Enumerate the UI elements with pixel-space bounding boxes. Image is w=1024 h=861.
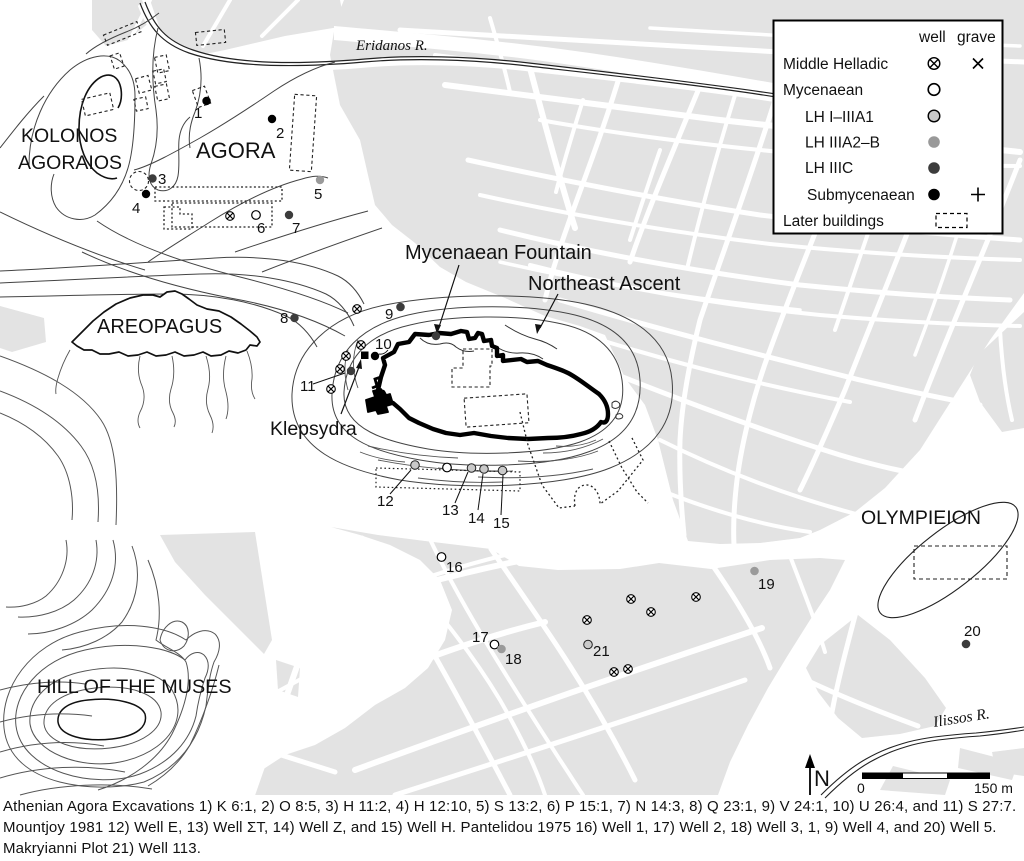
svg-text:15: 15: [493, 515, 510, 532]
svg-text:Athenian Agora Excavations 1): Athenian Agora Excavations 1) K 6:1, 2) …: [3, 798, 1016, 815]
svg-text:Klepsydra: Klepsydra: [270, 418, 357, 440]
svg-text:AGORAIOS: AGORAIOS: [18, 152, 122, 174]
svg-text:N: N: [814, 766, 830, 791]
svg-text:well: well: [918, 29, 946, 46]
svg-text:21: 21: [593, 643, 610, 660]
svg-text:OLYMPIEION: OLYMPIEION: [861, 507, 981, 529]
svg-text:3: 3: [158, 171, 166, 188]
svg-text:14: 14: [468, 510, 485, 527]
svg-text:12: 12: [377, 493, 394, 510]
svg-text:Eridanos R.: Eridanos R.: [355, 38, 428, 54]
svg-text:13: 13: [442, 502, 459, 519]
svg-text:Makryianni Plot 21) Well 113.: Makryianni Plot 21) Well 113.: [3, 840, 201, 857]
svg-text:2: 2: [276, 125, 284, 142]
svg-text:LH IIIA2–B: LH IIIA2–B: [805, 135, 880, 152]
svg-text:8: 8: [280, 310, 288, 327]
svg-text:AGORA: AGORA: [196, 138, 276, 163]
svg-text:11: 11: [300, 378, 316, 395]
svg-text:Mycenaean Fountain: Mycenaean Fountain: [405, 242, 592, 264]
svg-text:1: 1: [194, 105, 202, 122]
svg-text:Submycenaean: Submycenaean: [807, 187, 915, 204]
svg-text:6: 6: [257, 220, 265, 237]
svg-text:16: 16: [446, 559, 463, 576]
svg-text:Mountjoy 1981 12) Well E, 13): Mountjoy 1981 12) Well E, 13) Well ΣT, 1…: [3, 819, 997, 836]
svg-text:Later buildings: Later buildings: [783, 213, 884, 230]
svg-text:AREOPAGUS: AREOPAGUS: [97, 316, 222, 338]
svg-text:20: 20: [964, 623, 981, 640]
svg-text:4: 4: [132, 200, 140, 217]
svg-text:17: 17: [472, 629, 489, 646]
svg-text:Middle Helladic: Middle Helladic: [783, 56, 888, 73]
svg-text:7: 7: [292, 220, 300, 237]
svg-text:10: 10: [375, 336, 392, 353]
svg-text:150 m: 150 m: [974, 780, 1013, 796]
svg-text:KOLONOS: KOLONOS: [21, 125, 117, 147]
svg-text:19: 19: [758, 576, 775, 593]
svg-text:18: 18: [505, 651, 522, 668]
svg-text:LH IIIC: LH IIIC: [805, 160, 853, 177]
svg-text:0: 0: [857, 780, 865, 796]
svg-text:9: 9: [385, 306, 393, 323]
svg-text:grave: grave: [957, 29, 996, 46]
svg-text:5: 5: [314, 186, 322, 203]
svg-text:LH I–IIIA1: LH I–IIIA1: [805, 109, 874, 126]
svg-text:Mycenaean: Mycenaean: [783, 82, 863, 99]
svg-text:Northeast Ascent: Northeast Ascent: [528, 273, 681, 295]
svg-text:HILL OF THE MUSES: HILL OF THE MUSES: [37, 676, 232, 698]
